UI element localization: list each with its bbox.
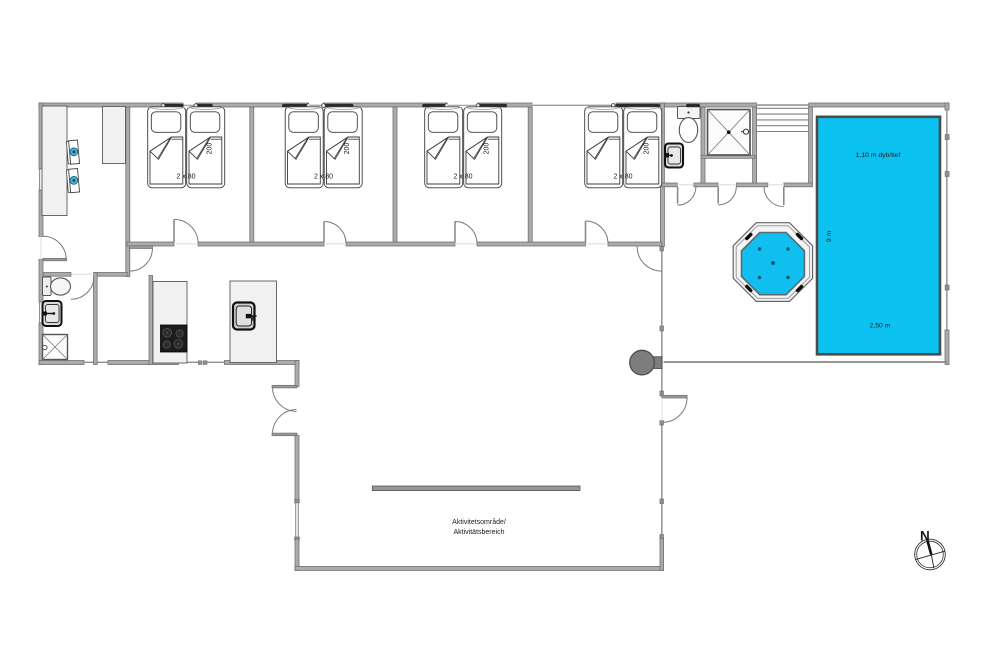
- svg-text:200: 200: [344, 143, 351, 155]
- svg-text:9 m: 9 m: [826, 231, 833, 243]
- svg-text:2 x 80: 2 x 80: [314, 174, 333, 181]
- svg-text:200: 200: [207, 143, 214, 155]
- svg-text:200: 200: [644, 143, 651, 155]
- svg-text:1,10 m dyb/tief: 1,10 m dyb/tief: [856, 152, 901, 159]
- svg-text:200: 200: [484, 143, 491, 155]
- svg-text:N: N: [920, 529, 930, 544]
- svg-text:Aktivitätsbereich: Aktivitätsbereich: [454, 529, 505, 536]
- svg-text:2,50 m: 2,50 m: [870, 323, 891, 330]
- svg-text:2 x 80: 2 x 80: [453, 174, 472, 181]
- svg-text:2 x 80: 2 x 80: [176, 174, 195, 181]
- svg-text:2 x 80: 2 x 80: [613, 174, 632, 181]
- svg-text:Aktivitetsområde/: Aktivitetsområde/: [452, 518, 506, 526]
